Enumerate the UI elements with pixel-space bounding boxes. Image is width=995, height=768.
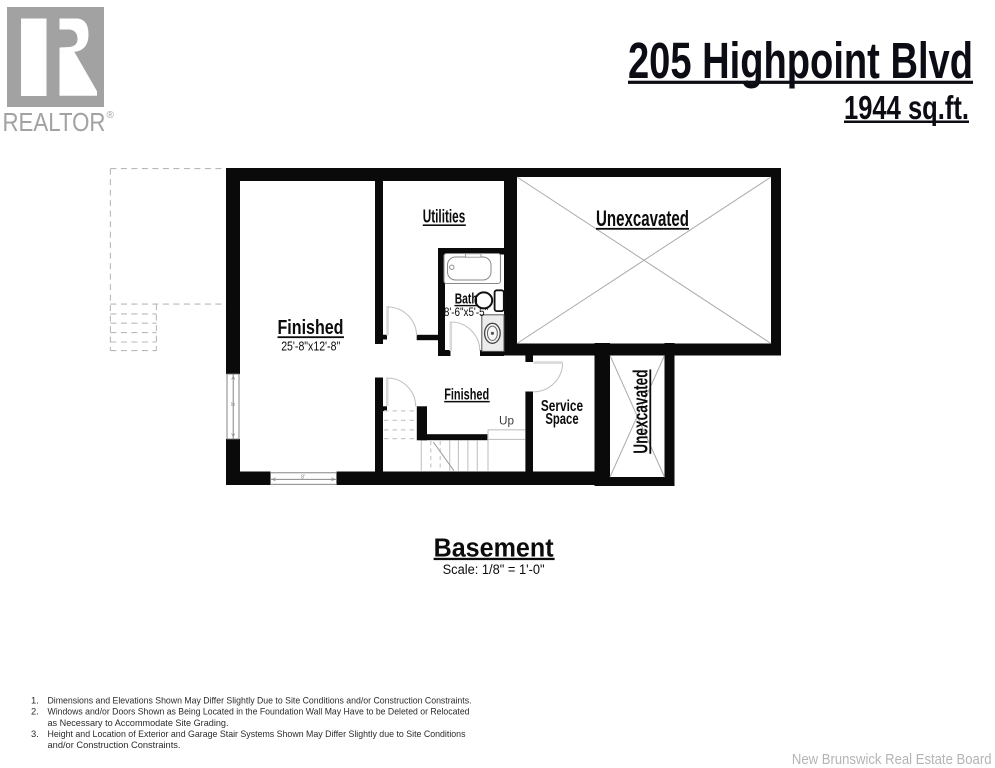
svg-text:REALTOR: REALTOR xyxy=(3,107,106,137)
svg-text:205 Highpoint Blvd: 205 Highpoint Blvd xyxy=(628,32,973,89)
svg-text:8': 8' xyxy=(231,402,237,406)
svg-text:Utilities: Utilities xyxy=(423,206,466,227)
svg-text:Unexcavated: Unexcavated xyxy=(596,206,689,231)
svg-text:as Necessary to Accommodate Si: as Necessary to Accommodate Site Grading… xyxy=(48,717,229,728)
svg-text:8': 8' xyxy=(301,474,305,480)
svg-text:3.: 3. xyxy=(31,728,39,739)
svg-text:25'-8"x12'-8": 25'-8"x12'-8" xyxy=(281,340,340,354)
svg-text:8'-6"x5'-5": 8'-6"x5'-5" xyxy=(444,307,488,319)
svg-text:Scale: 1/8" = 1'-0": Scale: 1/8" = 1'-0" xyxy=(443,562,545,577)
svg-text:New Brunswick Real Estate Boar: New Brunswick Real Estate Board xyxy=(792,752,992,768)
svg-text:Space: Space xyxy=(545,411,578,428)
svg-text:Up: Up xyxy=(499,414,514,428)
svg-text:Unexcavated: Unexcavated xyxy=(630,369,653,453)
svg-text:Finished: Finished xyxy=(444,386,489,403)
svg-text:Height and Location of Exterio: Height and Location of Exterior and Gara… xyxy=(48,728,466,739)
svg-text:Windows and/or Doors Shown as: Windows and/or Doors Shown as Being Loca… xyxy=(48,706,470,717)
svg-text:1944 sq.ft.: 1944 sq.ft. xyxy=(844,89,969,126)
svg-text:and/or Construction Constraint: and/or Construction Constraints. xyxy=(48,739,181,750)
svg-text:®: ® xyxy=(107,110,115,121)
svg-text:2.: 2. xyxy=(31,706,39,717)
svg-text:Finished: Finished xyxy=(278,316,344,339)
svg-text:Dimensions and Elevations Show: Dimensions and Elevations Shown May Diff… xyxy=(48,695,472,706)
svg-text:1.: 1. xyxy=(31,695,39,706)
